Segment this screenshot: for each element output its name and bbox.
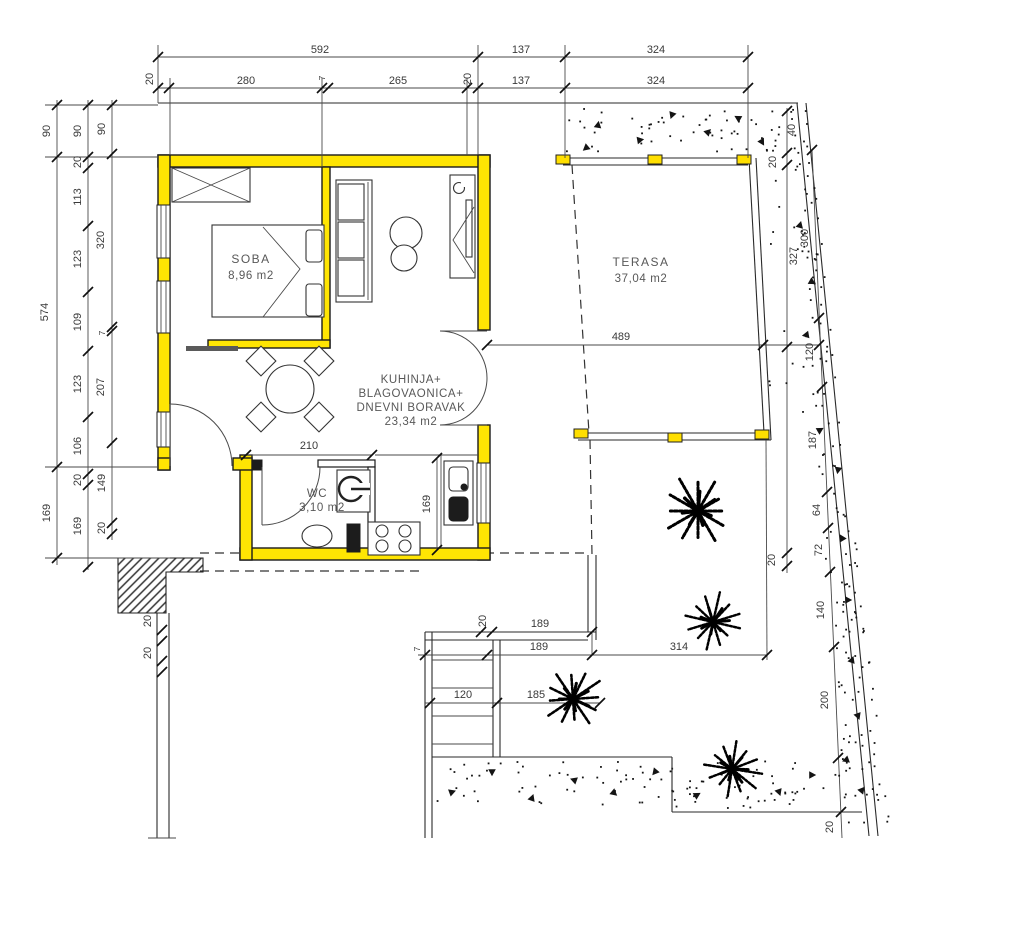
dim-label: 7: [97, 330, 107, 335]
stove: [368, 522, 420, 555]
floor-plan-drawing: 592 137 324 20 280 7 265 20 137 324 90 5…: [0, 0, 1024, 929]
floor-plan-canvas: 592 137 324 20 280 7 265 20 137 324 90 5…: [0, 0, 1024, 929]
dim-label: 109: [72, 313, 84, 331]
dim-label: 489: [612, 331, 630, 343]
terrace-marker: [574, 429, 588, 438]
dim-label: 20: [824, 821, 836, 833]
terrace-marker: [556, 155, 570, 164]
terrace-marker: [755, 430, 769, 439]
dim-label: 20: [144, 73, 156, 85]
dim-label: 200: [819, 691, 831, 709]
dim-label: 40: [786, 124, 798, 136]
dim-label: 574: [39, 303, 51, 321]
dim-label: 137: [512, 75, 530, 87]
dim-label: 320: [95, 231, 107, 249]
window: [477, 463, 490, 523]
dim-label: 90: [41, 125, 53, 137]
room-area-living: 23,34 m2: [385, 416, 438, 428]
dining-chair: [304, 346, 334, 376]
window: [157, 205, 170, 258]
dim-label: 120: [454, 689, 472, 701]
dim-label: 210: [300, 440, 318, 452]
dim-label: 20: [72, 474, 84, 486]
dim-label: 169: [72, 517, 84, 535]
dim-label: 20: [96, 522, 108, 534]
pouf: [391, 245, 417, 271]
dim-label: 189: [530, 641, 548, 653]
room-name-living: KUHINJA+: [381, 374, 442, 386]
dim-label: 324: [647, 44, 665, 56]
dim-label: 189: [531, 618, 549, 630]
gravel-triangle-marks: [448, 111, 868, 802]
balcony-door-arc: [440, 331, 487, 378]
dining-table: [266, 365, 314, 413]
room-area-wc: 3,10 m2: [299, 502, 345, 514]
dim-label: 64: [811, 504, 823, 516]
dim-label: 20: [477, 615, 489, 627]
room-name-soba: SOBA: [231, 252, 270, 266]
stairs: [425, 632, 500, 838]
dim-label: 123: [72, 375, 84, 393]
dining-chair: [246, 346, 276, 376]
room-name-living: DNEVNI BORAVAK: [357, 402, 466, 414]
pouf: [390, 217, 422, 249]
dim-label: 140: [815, 601, 827, 619]
plant-icon: [667, 479, 724, 541]
dim-label: 120: [804, 343, 816, 361]
room-name-wc: WC: [307, 488, 327, 500]
garden-plants: [548, 479, 762, 796]
dim-label: 90: [96, 123, 108, 135]
dim-label: 169: [41, 504, 53, 522]
dim-label: 123: [72, 250, 84, 268]
dim-label: 265: [389, 75, 407, 87]
dim-label: 327: [788, 247, 800, 265]
dim-label: 90: [72, 125, 84, 137]
window: [157, 281, 170, 333]
dim-label: 185: [527, 689, 545, 701]
dim-label: 314: [670, 641, 688, 653]
pillow: [306, 284, 322, 316]
pillow: [306, 230, 322, 262]
dim-label: 324: [647, 75, 665, 87]
sliding-door: [186, 346, 238, 351]
terrace-marker: [668, 433, 682, 442]
site-boundary: [158, 103, 878, 838]
oven: [347, 524, 360, 552]
dim-label: 7: [317, 75, 327, 80]
gravel-stipple-texture: [437, 108, 890, 823]
dining-chair: [304, 402, 334, 432]
dim-label: 106: [72, 437, 84, 455]
dim-label: 20: [767, 156, 779, 168]
dim-label: 169: [421, 495, 433, 513]
dim-label: 72: [813, 544, 825, 556]
plant-icon: [684, 592, 740, 649]
room-area-soba: 8,96 m2: [228, 270, 274, 282]
dim-label: 187: [807, 431, 819, 449]
dim-label: 207: [95, 378, 107, 396]
plant-icon: [704, 740, 762, 796]
dim-label: 280: [237, 75, 255, 87]
toilet: [302, 525, 332, 547]
dim-label: 137: [512, 44, 530, 56]
terrace-outline: [556, 155, 771, 555]
dim-label: 20: [72, 156, 84, 168]
dim-label: 20: [462, 73, 474, 85]
plant-icon: [548, 673, 599, 723]
window: [157, 412, 170, 447]
existing-wall-hatch: [118, 558, 203, 838]
door-hinge-block: [252, 460, 262, 470]
terrace-marker: [737, 155, 751, 164]
tv-screen: [466, 200, 472, 257]
dim-label: 7: [412, 646, 422, 651]
furniture-bedroom: [172, 168, 324, 317]
dim-label: 113: [72, 188, 84, 206]
dim-label: 592: [311, 44, 329, 56]
terrace-marker: [648, 155, 662, 164]
dim-label: 20: [766, 554, 778, 566]
dining-chair: [246, 402, 276, 432]
room-name-terasa: TERASA: [612, 255, 669, 269]
dim-label: 300: [799, 229, 811, 247]
dim-label: 20: [142, 647, 154, 659]
room-name-living: BLAGOVAONICA+: [358, 388, 463, 400]
entrance-door-arc: [170, 404, 232, 466]
dim-label: 20: [142, 615, 154, 627]
room-area-terasa: 37,04 m2: [615, 273, 668, 285]
dim-label: 149: [96, 474, 108, 492]
